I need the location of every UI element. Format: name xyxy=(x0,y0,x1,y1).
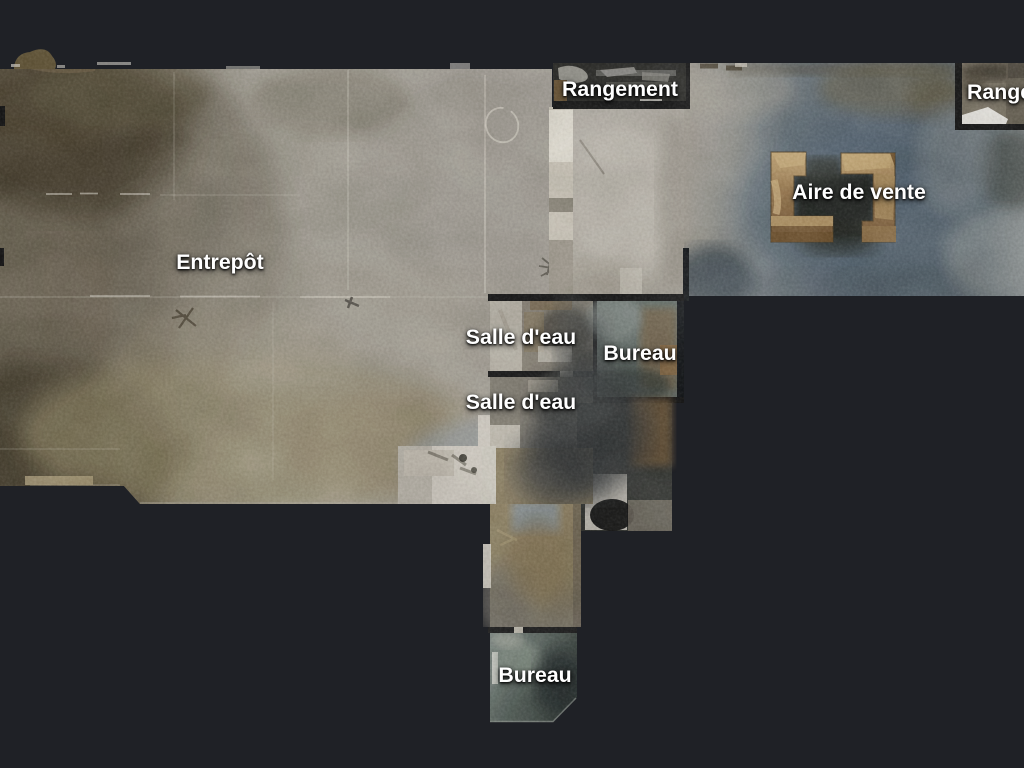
svg-text:Salle d'eau: Salle d'eau xyxy=(466,390,576,414)
svg-text:Bureau: Bureau xyxy=(603,341,676,365)
svg-text:Rangement: Rangement xyxy=(967,80,1024,104)
svg-text:Bureau: Bureau xyxy=(498,663,571,687)
svg-text:Salle d'eau: Salle d'eau xyxy=(466,325,576,349)
svg-text:Aire de vente: Aire de vente xyxy=(792,180,926,204)
svg-text:Entrepôt: Entrepôt xyxy=(176,250,264,274)
svg-text:Rangement: Rangement xyxy=(562,77,678,101)
